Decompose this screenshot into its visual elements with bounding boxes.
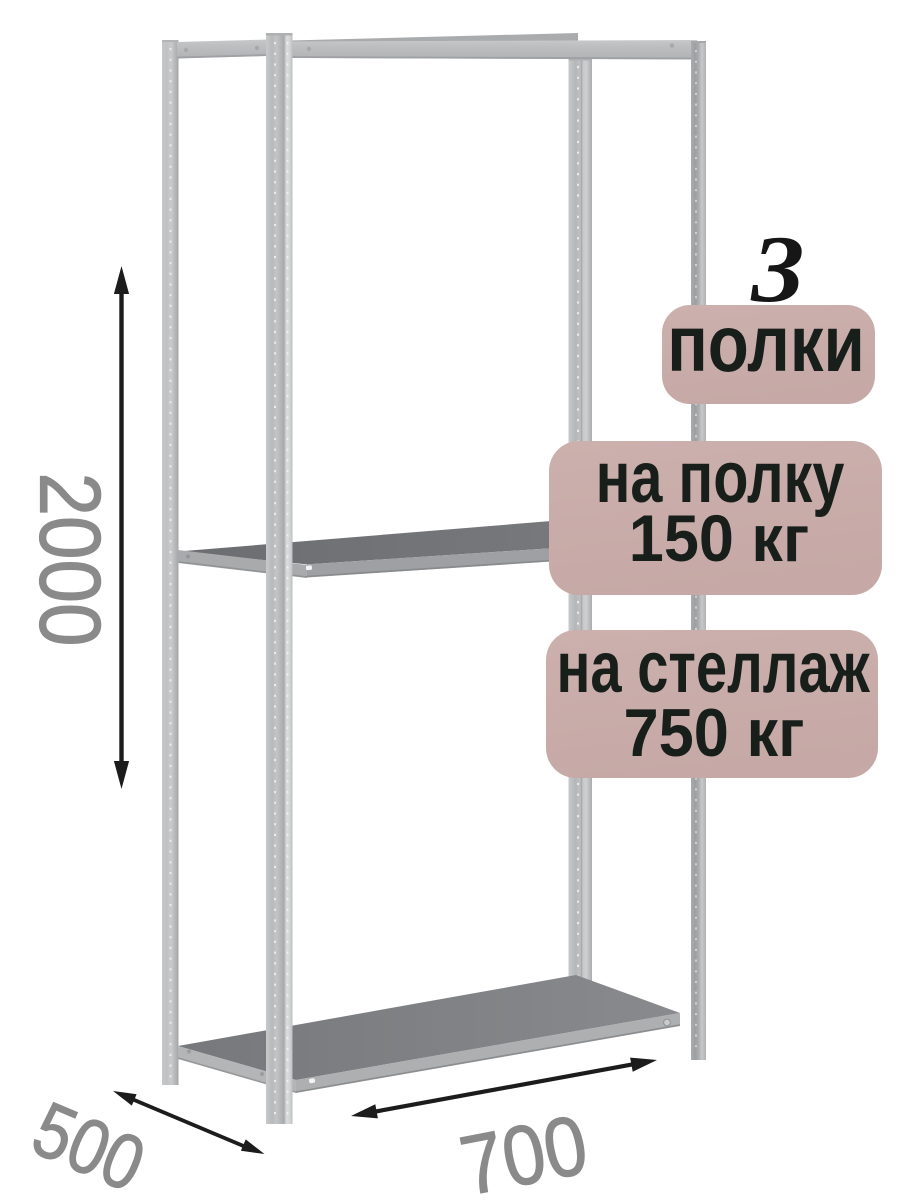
svg-text:750 кг: 750 кг (623, 695, 804, 771)
svg-text:2000: 2000 (22, 472, 117, 646)
svg-text:150 кг: 150 кг (629, 502, 809, 576)
svg-text:полки: полки (667, 298, 865, 388)
